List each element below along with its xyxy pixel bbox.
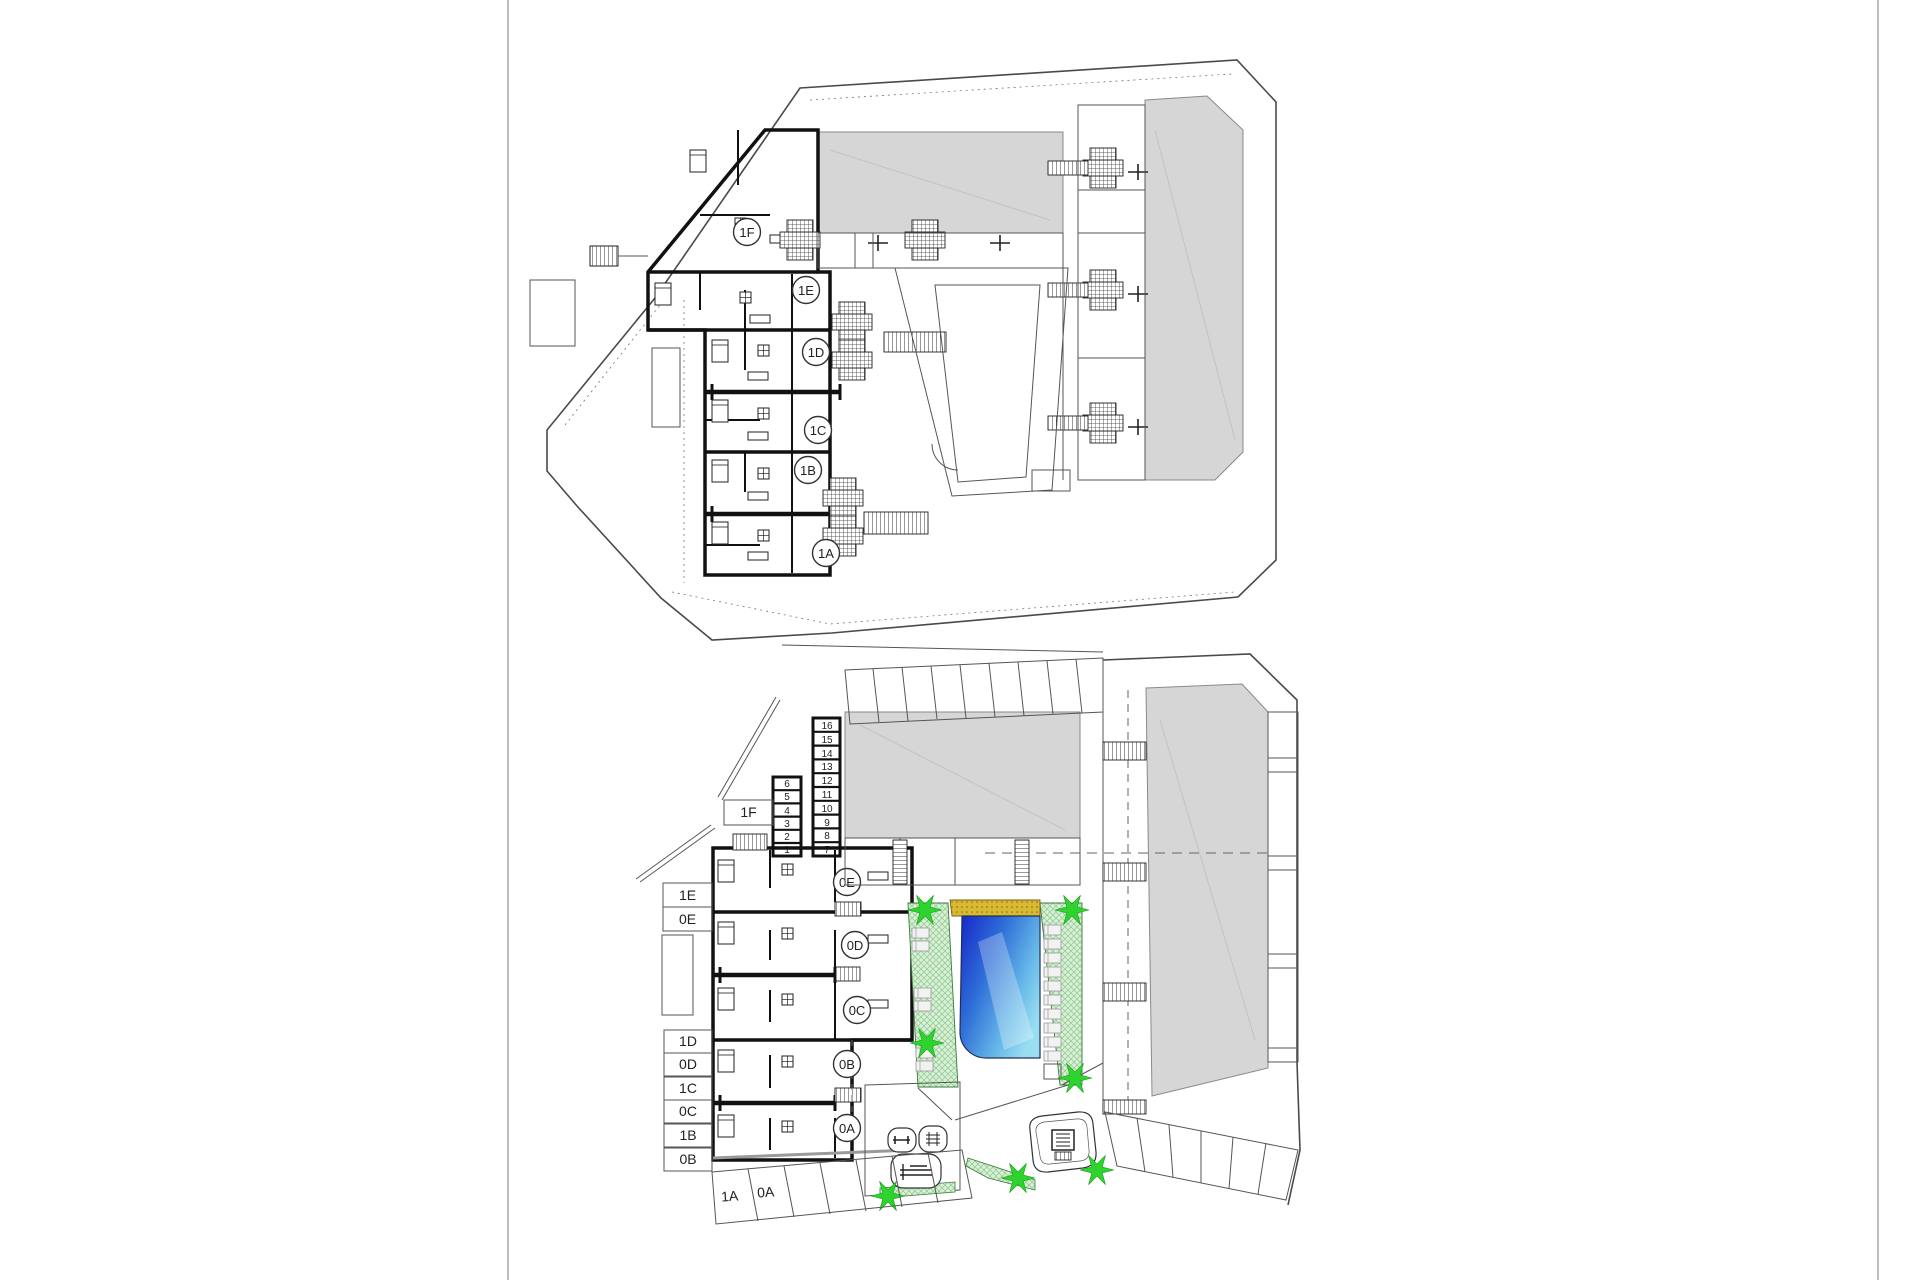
upper-floor-plan: 1F 1E 1D 1C 1B 1A: [530, 60, 1276, 640]
box-label-1B: 1B: [679, 1127, 696, 1143]
parking-label-0A: 0A: [757, 1183, 776, 1200]
storage-label: 15: [821, 735, 833, 746]
lower-right-terraces: [1268, 712, 1298, 1062]
stair-icon: [835, 1088, 861, 1102]
plan-drawing: 1F 1E 1D 1C 1B 1A: [0, 0, 1920, 1280]
unit-label-1D: 1D: [808, 345, 825, 360]
storage-label: 2: [784, 832, 790, 843]
stair-icon: [733, 834, 767, 850]
storage-label: 5: [784, 792, 790, 803]
storage-label: 13: [821, 762, 833, 773]
walkway-stairs-icon: [1103, 742, 1146, 760]
stair-icon: [836, 967, 860, 981]
unit-label-1A: 1A: [818, 546, 834, 561]
parking-label-1A: 1A: [721, 1187, 740, 1204]
box-label-0C: 0C: [679, 1103, 697, 1119]
storage-label: 16: [821, 721, 833, 732]
setback-dotted-top: [810, 74, 1232, 100]
unit-label-1F: 1F: [739, 225, 754, 240]
box-label-0D: 0D: [679, 1056, 697, 1072]
unit-label-0B: 0B: [839, 1057, 855, 1072]
unit-label-0A: 0A: [839, 1121, 855, 1136]
plan-sheet: 1F 1E 1D 1C 1B 1A: [0, 0, 1920, 1280]
storage-label: 6: [784, 779, 790, 790]
storage-label: 3: [784, 819, 790, 830]
upper-center-building-mass: [818, 132, 1063, 233]
empty-annex-box: [662, 935, 693, 1015]
storage-label: 11: [822, 790, 833, 801]
unit-label-1C: 1C: [810, 423, 827, 438]
box-label-0B: 0B: [679, 1151, 696, 1167]
storage-label: 4: [784, 806, 790, 817]
box-label-0E: 0E: [679, 911, 696, 927]
upper-left-annex-box: [530, 280, 575, 346]
storage-label: 8: [824, 831, 830, 842]
stair-icon: [893, 840, 907, 884]
lower-site-plan: 16 15 14 13 12 11 10 9 8 7 6 5 4 3 2 1: [636, 645, 1300, 1224]
retaining-walls: [636, 697, 780, 882]
furniture: [655, 150, 790, 560]
walkway-stairs-icon: [1103, 863, 1146, 881]
storage-label: 10: [821, 804, 833, 815]
box-label-1D: 1D: [679, 1033, 697, 1049]
unit-label-1B: 1B: [800, 463, 816, 478]
unit-label-0C: 0C: [849, 1003, 866, 1018]
upper-courtyard: [895, 268, 1070, 496]
stair-icon: [1015, 840, 1029, 884]
box-label-1F: 1F: [740, 804, 756, 820]
southeast-parking-row: [1105, 1112, 1298, 1200]
storage-rooms: 16 15 14 13 12 11 10 9 8 7 6 5 4 3 2 1: [773, 718, 840, 856]
stair-icon: [590, 246, 618, 266]
stair-icon: [835, 902, 861, 916]
walkway-stairs-icon: [1103, 983, 1146, 1001]
box-label-1C: 1C: [679, 1080, 697, 1096]
sun-strip: [950, 900, 1040, 916]
unit-label-0D: 0D: [847, 938, 864, 953]
upper-left-terrace-box: [652, 348, 680, 427]
upper-right-building-mass: [1145, 96, 1243, 480]
storage-label: 14: [821, 749, 833, 760]
lower-apartment-strip: [713, 834, 912, 1160]
amenity-area: [865, 1082, 1114, 1211]
pool-area: [908, 895, 1103, 1120]
unit-label-1E: 1E: [798, 283, 814, 298]
walkway-stairs-icon: [1103, 1100, 1146, 1114]
box-label-1E: 1E: [679, 887, 696, 903]
storage-label: 9: [824, 818, 830, 829]
lower-right-building-mass: [1146, 684, 1268, 1096]
unit-label-0E: 0E: [839, 875, 855, 890]
storage-label: 12: [821, 776, 833, 787]
